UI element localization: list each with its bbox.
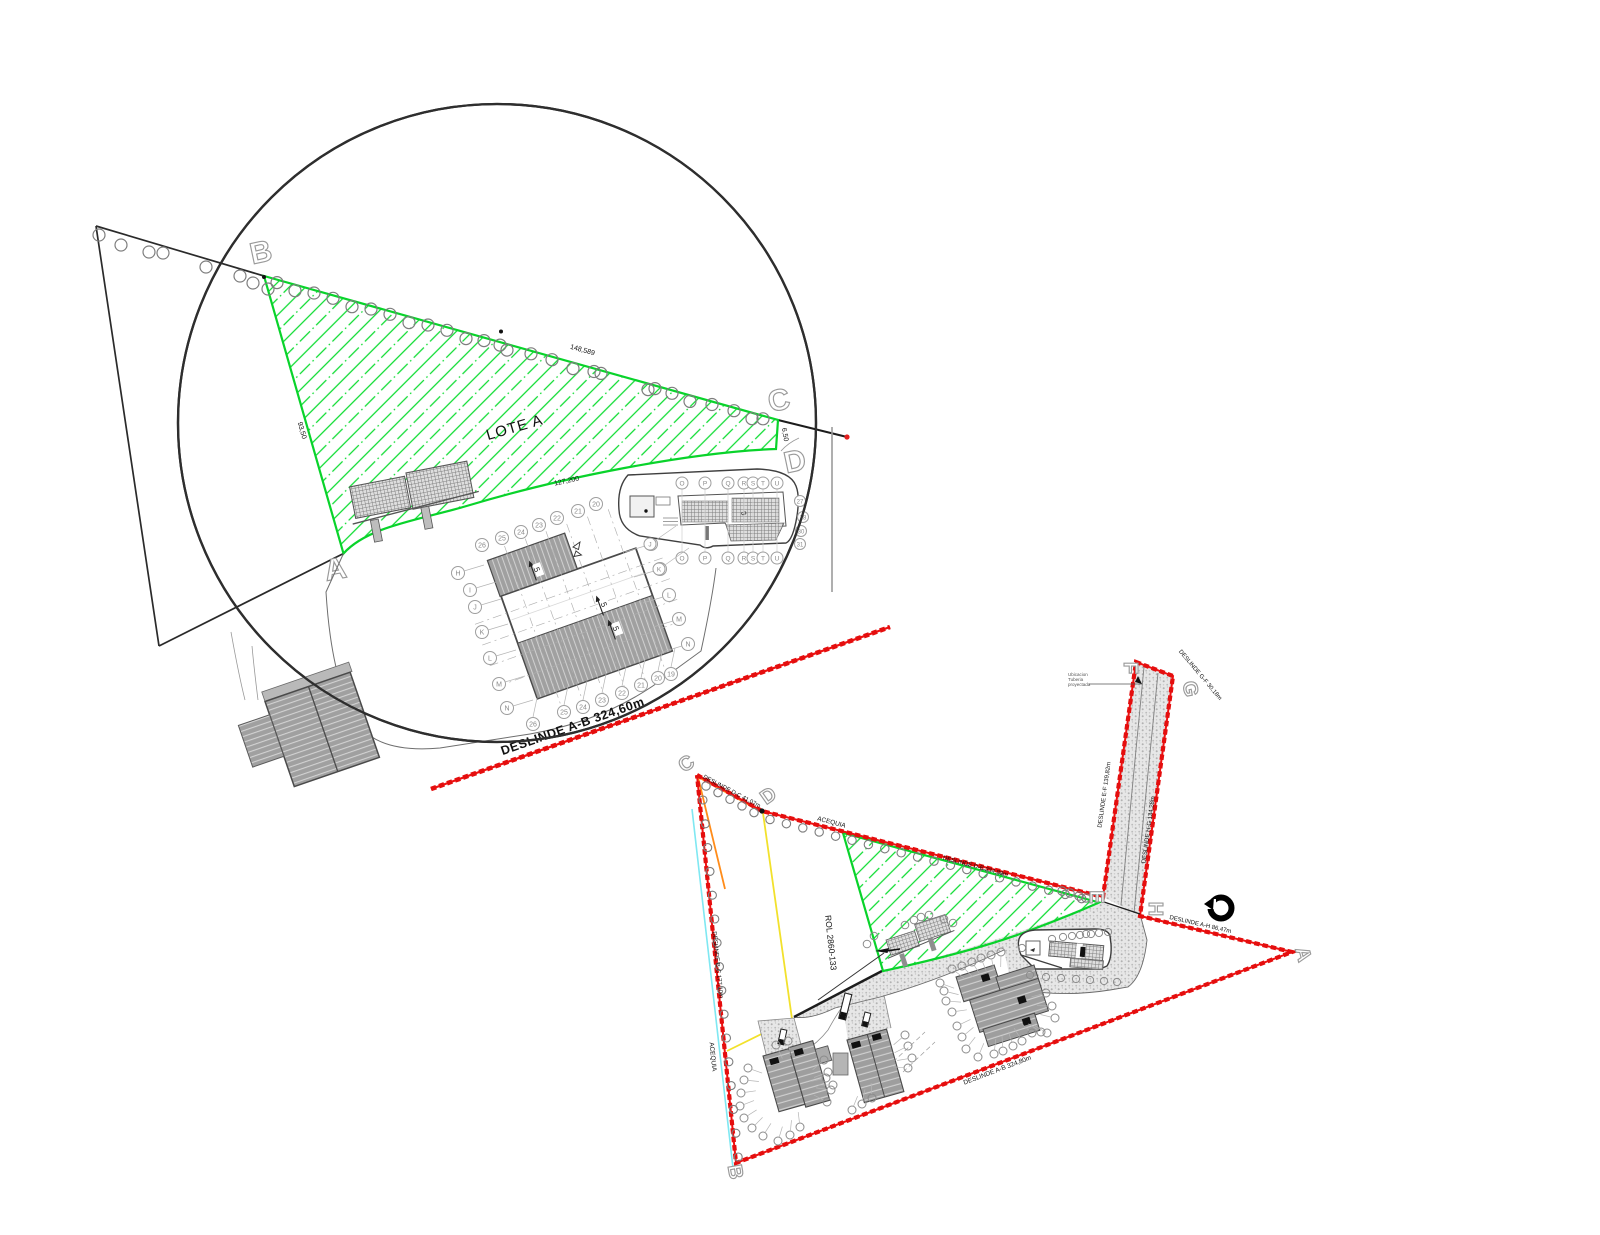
svg-text:21: 21 xyxy=(637,682,645,689)
svg-text:K: K xyxy=(657,566,662,573)
svg-text:H: H xyxy=(455,570,460,577)
svg-text:30: 30 xyxy=(798,529,805,535)
svg-text:24: 24 xyxy=(517,529,525,536)
svg-text:24: 24 xyxy=(579,704,587,711)
svg-text:19: 19 xyxy=(667,671,675,678)
svg-text:J: J xyxy=(648,541,651,548)
svg-text:U: U xyxy=(775,480,780,487)
svg-text:T: T xyxy=(761,480,765,487)
svg-text:O: O xyxy=(679,480,684,487)
svg-text:L: L xyxy=(488,655,492,662)
svg-text:H: H xyxy=(1144,902,1166,916)
svg-text:Q: Q xyxy=(725,555,730,562)
svg-text:26: 26 xyxy=(478,542,486,549)
svg-text:U: U xyxy=(775,555,780,562)
svg-text:S: S xyxy=(751,480,756,487)
svg-text:20: 20 xyxy=(592,501,600,508)
svg-text:31: 31 xyxy=(797,542,804,548)
svg-text:S: S xyxy=(751,555,756,562)
svg-text:I: I xyxy=(469,587,471,594)
svg-text:25: 25 xyxy=(560,709,568,716)
svg-text:R: R xyxy=(742,480,747,487)
svg-text:22: 22 xyxy=(618,690,626,697)
svg-text:N: N xyxy=(685,641,690,648)
svg-text:Q: Q xyxy=(725,480,730,487)
svg-text:20: 20 xyxy=(654,675,662,682)
svg-text:L: L xyxy=(667,592,671,599)
svg-text:J: J xyxy=(473,604,477,611)
svg-text:P: P xyxy=(703,480,707,487)
svg-text:27: 27 xyxy=(797,499,804,505)
svg-text:M: M xyxy=(676,616,682,623)
svg-text:F: F xyxy=(1119,662,1141,674)
svg-text:23: 23 xyxy=(535,522,543,529)
svg-text:R: R xyxy=(742,555,747,562)
svg-text:P: P xyxy=(703,555,707,562)
svg-text:E: E xyxy=(1085,890,1107,903)
svg-text:T: T xyxy=(761,555,765,562)
svg-text:22: 22 xyxy=(553,515,561,522)
svg-text:K: K xyxy=(480,629,485,636)
svg-text:23: 23 xyxy=(598,697,606,704)
svg-text:21: 21 xyxy=(574,508,582,515)
svg-text:N: N xyxy=(504,705,509,712)
svg-text:proyectada: proyectada xyxy=(1068,682,1091,687)
svg-text:O: O xyxy=(679,555,684,562)
svg-text:25: 25 xyxy=(498,535,506,542)
svg-text:26: 26 xyxy=(529,721,537,728)
svg-text:M: M xyxy=(496,681,502,688)
